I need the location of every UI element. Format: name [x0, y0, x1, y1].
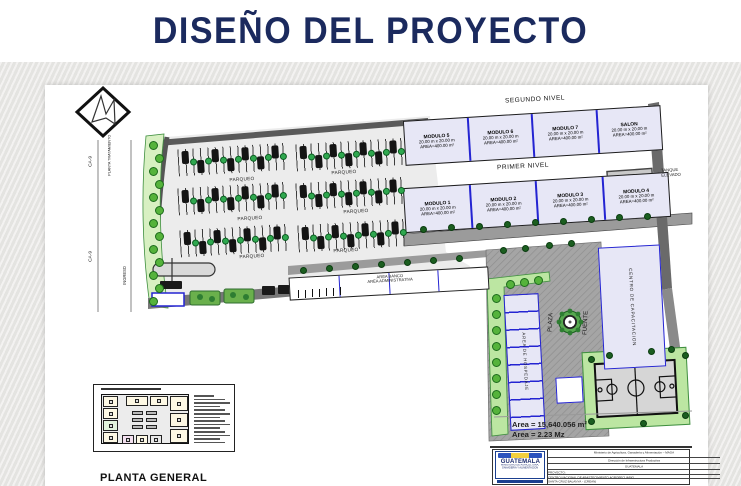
tree-icon	[149, 193, 158, 202]
legend-line	[194, 424, 230, 426]
tree-icon	[155, 284, 164, 293]
inset-fixture	[109, 424, 113, 428]
car-icon	[315, 194, 323, 207]
tree-icon	[560, 218, 567, 225]
legend-line	[194, 435, 230, 437]
slide-header: DISEÑO DEL PROYECTO	[0, 0, 741, 62]
tree-icon	[149, 245, 158, 254]
inset-fixture	[177, 418, 181, 422]
tree-icon	[280, 192, 287, 199]
inset-table	[132, 411, 143, 415]
road-label-planta-tratamiento: PLANTA TRATAMIENTO	[108, 167, 112, 176]
fence-tick	[312, 289, 313, 297]
guatemala-logo: GUATEMALA MINISTERIO DE AGRICULTURA, GAN…	[493, 450, 548, 484]
tree-icon	[682, 352, 689, 359]
fence-tick	[333, 288, 334, 296]
car-icon	[257, 156, 265, 169]
tanque-elevado-label: TANQUE ELEVADO	[661, 167, 691, 178]
legend-line	[194, 413, 230, 415]
car-icon	[183, 232, 191, 245]
slide-title: DISEÑO DEL PROYECTO	[153, 10, 588, 52]
tree-icon	[398, 148, 405, 155]
car-icon	[259, 237, 267, 250]
road-label-ca9-bottom: CA-9	[88, 251, 94, 262]
tree-icon	[492, 390, 501, 399]
legend-line	[194, 431, 225, 433]
tree-icon	[420, 226, 427, 233]
tree-icon	[644, 213, 651, 220]
car-icon	[317, 236, 325, 249]
car-icon	[377, 232, 385, 245]
tree-icon	[492, 374, 501, 383]
car-icon	[331, 225, 339, 238]
legend-line	[194, 442, 225, 444]
inset-fixture	[109, 436, 113, 440]
modulo-7: MODULO 7 20.00 m x 20.00 m AREA=400.00 m…	[533, 110, 600, 157]
area-figures: Area = 15,640.056 m² Area = 2.23 Mz	[512, 420, 587, 440]
tree-icon	[588, 356, 595, 363]
tree-icon	[588, 418, 595, 425]
car-icon	[273, 226, 281, 239]
tree-icon	[546, 242, 553, 249]
tree-icon	[506, 280, 515, 289]
inset-legend	[194, 395, 232, 447]
tree-icon	[648, 348, 655, 355]
inset-fixture	[154, 438, 158, 442]
fence-tick	[305, 290, 306, 298]
tree-icon	[492, 358, 501, 367]
car-icon	[199, 241, 207, 254]
legend-line	[194, 409, 225, 411]
car-icon	[213, 230, 221, 243]
car-icon	[329, 144, 337, 157]
tree-icon	[640, 420, 647, 427]
car-icon	[181, 151, 189, 164]
tree-icon	[682, 412, 689, 419]
legend-line	[194, 420, 225, 422]
tree-icon	[492, 294, 501, 303]
car-icon	[301, 227, 309, 240]
small-building	[555, 376, 583, 403]
modulo-1: MODULO 1 20.00 m x 20.00 m AREA=400.00 m…	[404, 185, 473, 232]
car-icon	[329, 183, 337, 196]
car-icon	[227, 158, 235, 171]
road-label-ca9-top: CA-9	[88, 156, 94, 167]
inset-fixture	[140, 438, 144, 442]
slide: DISEÑO DEL PROYECTO	[0, 0, 741, 486]
tree-icon	[492, 342, 501, 351]
titleblock-info: Ministerio de Agricultura, Ganadería y A…	[548, 450, 720, 484]
tree-icon	[522, 245, 529, 252]
tree-icon	[280, 153, 287, 160]
fence-tick	[326, 288, 327, 296]
proyecto-loc: SANTA CRUZ BALANYA - (CREAN)	[548, 481, 634, 484]
car-icon	[271, 184, 279, 197]
tree-icon	[155, 154, 164, 163]
car-icon	[375, 190, 383, 203]
legend-line	[194, 438, 220, 440]
car-icon	[345, 153, 353, 166]
car-icon	[257, 195, 265, 208]
tree-icon	[155, 180, 164, 189]
legend-line	[194, 406, 220, 408]
car-icon	[241, 186, 249, 199]
modulo-5: MODULO 5 20.00 m x 20.00 m AREA=400.00 m…	[404, 118, 471, 165]
car-icon	[347, 234, 355, 247]
car-icon	[391, 221, 399, 234]
legend-line	[194, 402, 230, 404]
tree-icon	[149, 141, 158, 150]
inset-title-bar	[101, 388, 161, 390]
flag-emblem-icon	[498, 453, 542, 458]
car-icon	[229, 239, 237, 252]
tree-icon	[504, 221, 511, 228]
car-icon	[241, 147, 249, 160]
legend-line	[194, 395, 214, 397]
inset-fixture	[177, 402, 181, 406]
direccion-line: Dirección de Infraestructura Productiva	[591, 459, 677, 462]
tree-icon	[326, 265, 333, 272]
tree-icon	[534, 276, 543, 285]
area-m2: Area = 15,640.056 m²	[512, 420, 587, 430]
country-line: GUATEMALA	[591, 466, 677, 469]
tree-icon	[500, 247, 507, 254]
tree-icon	[668, 346, 675, 353]
car-icon	[197, 160, 205, 173]
inset-table	[146, 425, 157, 429]
inset-fixture	[135, 399, 139, 403]
tree-icon	[398, 187, 405, 194]
tree-icon	[149, 219, 158, 228]
modulo-3: MODULO 3 20.00 m x 20.00 m AREA=400.00 m…	[537, 177, 606, 224]
inset-floorplan	[101, 394, 189, 444]
legend-line	[194, 399, 225, 401]
tree-icon	[520, 278, 529, 287]
tree-icon	[155, 206, 164, 215]
car-icon	[359, 181, 367, 194]
car-icon	[211, 149, 219, 162]
car-icon	[211, 188, 219, 201]
car-icon	[389, 140, 397, 153]
tree-icon	[568, 240, 575, 247]
car-icon	[243, 228, 251, 241]
inset-table	[132, 425, 143, 429]
car-icon	[299, 146, 307, 159]
inset-fixture	[126, 438, 130, 442]
tree-icon	[155, 232, 164, 241]
inset-fixture	[157, 399, 161, 403]
inset-table	[132, 418, 143, 422]
fence-tick	[319, 289, 320, 297]
tree-icon	[282, 234, 289, 241]
ministry-line: Ministerio de Agricultura, Ganadería y A…	[591, 452, 677, 455]
car-icon	[271, 145, 279, 158]
car-icon	[299, 185, 307, 198]
salon: SALON 20.00 m x 20.00 m AREA=400.00 m²	[597, 106, 662, 153]
detail-inset	[93, 384, 235, 452]
fence-tick	[340, 287, 341, 295]
tree-icon	[492, 406, 501, 415]
tree-icon	[149, 297, 158, 306]
car-icon	[345, 192, 353, 205]
titleblock-rule	[490, 446, 692, 448]
car-icon	[361, 223, 369, 236]
fence-tick	[298, 290, 299, 298]
car-icon	[375, 151, 383, 164]
tree-icon	[492, 326, 501, 335]
inset-fixture	[109, 412, 113, 416]
inset-table	[146, 411, 157, 415]
tree-icon	[492, 310, 501, 319]
car-icon	[227, 197, 235, 210]
car-icon	[315, 155, 323, 168]
hospedaje-building: AREA DE HOSPEDAJE	[503, 293, 545, 431]
car-icon	[181, 190, 189, 203]
inset-fixture	[177, 434, 181, 438]
modulo-4: MODULO 4 20.00 m x 20.00 m AREA=400.00 m…	[603, 173, 670, 220]
modulo-6: MODULO 6 20.00 m x 20.00 m AREA=400.00 m…	[468, 114, 535, 161]
car-icon	[197, 199, 205, 212]
road-label-ingreso: INGRESO	[123, 266, 128, 285]
planta-general-caption: PLANTA GENERAL	[100, 472, 207, 484]
legend-line	[194, 427, 220, 429]
tree-icon	[149, 271, 158, 280]
car-icon	[389, 179, 397, 192]
car-icon	[359, 142, 367, 155]
tree-icon	[476, 223, 483, 230]
centro-capacitacion-building: CENTRO DE CAPACITACION	[598, 244, 666, 369]
tree-icon	[155, 258, 164, 267]
tree-icon	[149, 167, 158, 176]
tree-icon	[400, 229, 407, 236]
legend-line	[194, 417, 220, 419]
tree-icon	[588, 216, 595, 223]
titleblock: GUATEMALA MINISTERIO DE AGRICULTURA, GAN…	[492, 449, 690, 485]
inset-table	[146, 418, 157, 422]
tree-icon	[606, 352, 613, 359]
tree-icon	[300, 267, 307, 274]
inset-fixture	[109, 400, 113, 404]
area-mz: Area = 2.23 Mz	[512, 430, 587, 440]
